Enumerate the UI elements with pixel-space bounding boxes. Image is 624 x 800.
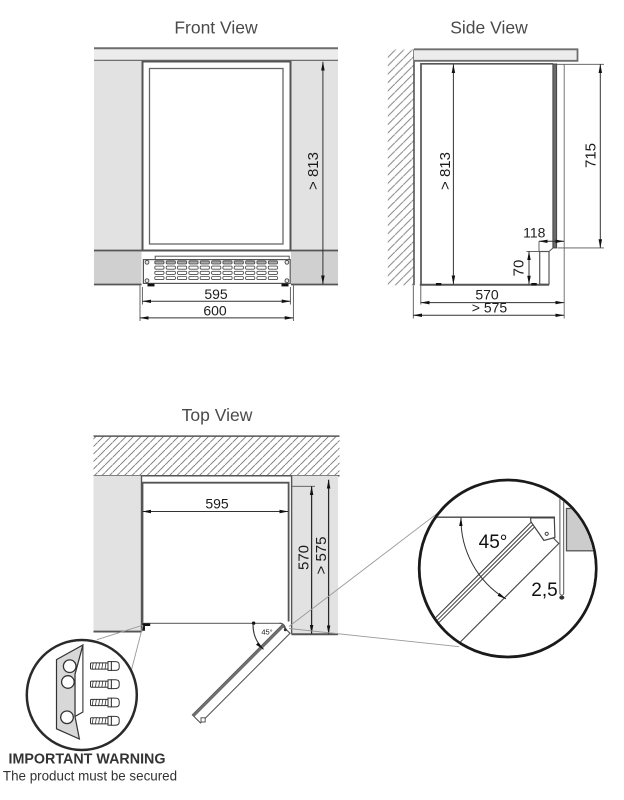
svg-text:> 575: > 575 — [313, 537, 330, 575]
svg-text:The product must be secured: The product must be secured — [3, 769, 177, 784]
svg-text:Side View: Side View — [450, 18, 528, 38]
svg-text:70: 70 — [511, 260, 528, 277]
svg-text:595: 595 — [204, 286, 228, 302]
svg-text:45°: 45° — [479, 532, 508, 553]
svg-text:45°: 45° — [261, 627, 272, 636]
svg-text:IMPORTANT WARNING: IMPORTANT WARNING — [9, 752, 166, 768]
svg-text:118: 118 — [523, 225, 546, 241]
svg-text:570: 570 — [296, 545, 313, 570]
svg-text:2,5: 2,5 — [531, 580, 557, 601]
svg-text:> 813: > 813 — [437, 152, 454, 190]
svg-text:595: 595 — [205, 495, 229, 511]
svg-text:> 575: > 575 — [472, 299, 508, 315]
svg-text:Top View: Top View — [182, 405, 253, 425]
svg-text:Front View: Front View — [174, 18, 258, 38]
svg-text:600: 600 — [203, 303, 227, 319]
svg-text:> 813: > 813 — [305, 152, 322, 190]
svg-text:715: 715 — [583, 143, 600, 168]
